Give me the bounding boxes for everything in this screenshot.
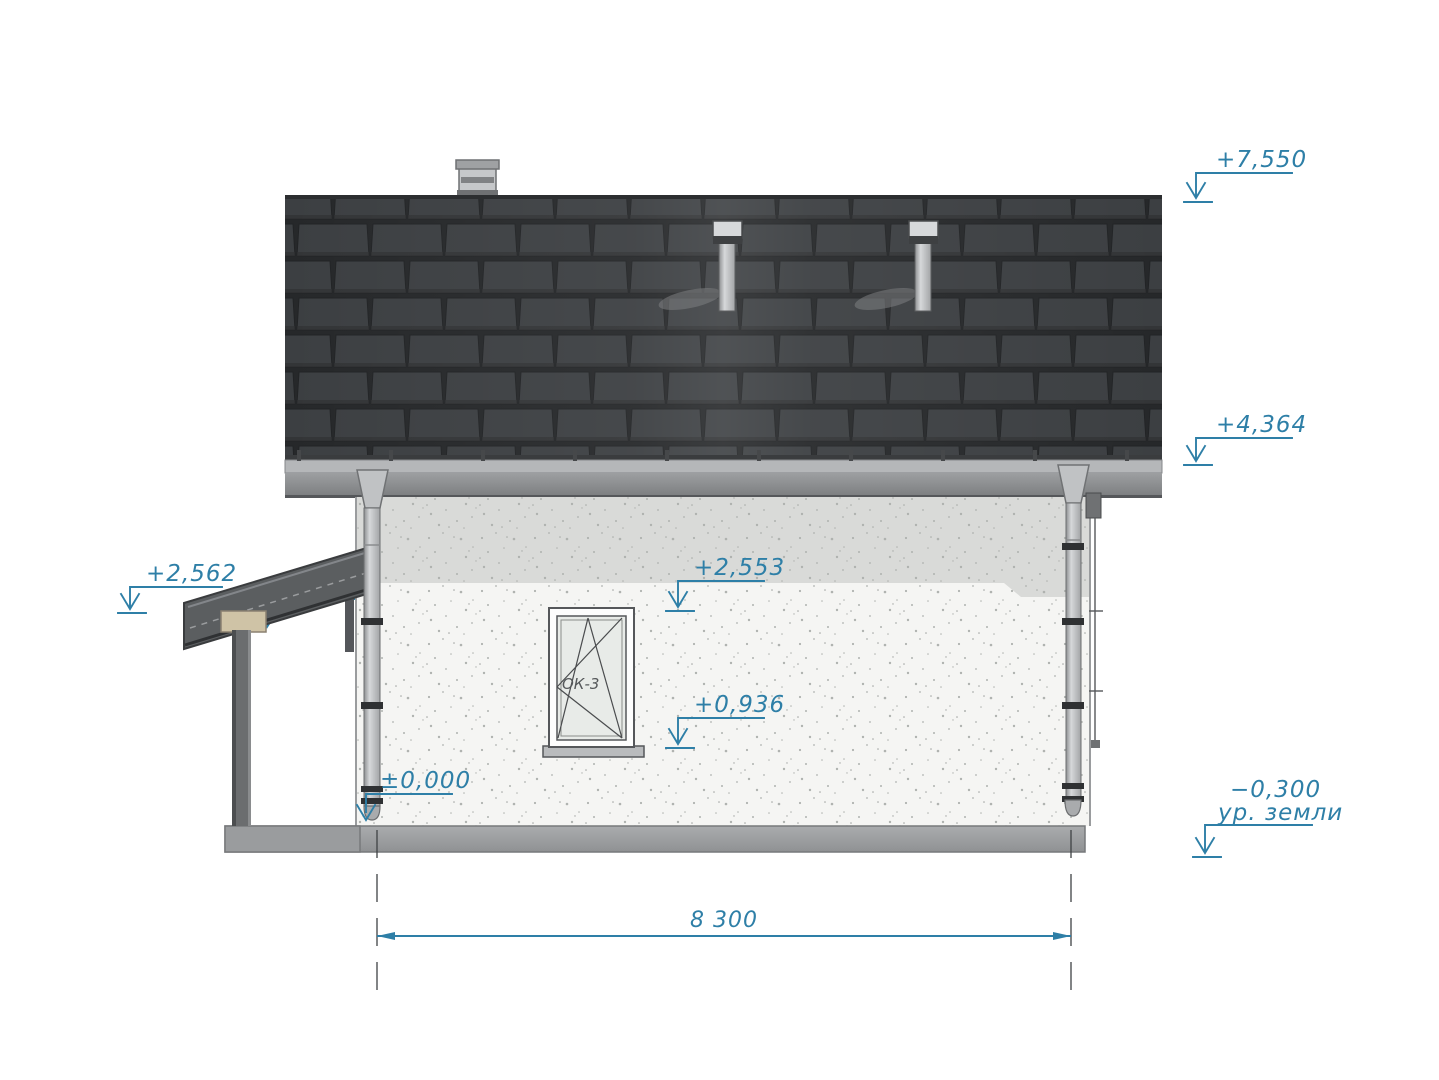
canopy-wall-bracket bbox=[345, 596, 354, 652]
wall-upper-band bbox=[356, 497, 1090, 597]
elevation-marker-ridge: +7,550 bbox=[1184, 147, 1307, 202]
foundation-strip bbox=[225, 826, 1085, 852]
elevation-value: +4,364 bbox=[1216, 412, 1307, 438]
elevation-value: +2,562 bbox=[146, 561, 237, 587]
dim-arrow-right bbox=[1053, 932, 1071, 940]
elevation-drawing: +2,360 bbox=[0, 0, 1439, 1080]
window-ok3: ОК-3 bbox=[543, 608, 644, 757]
ground-level-label: ур. земли bbox=[1217, 800, 1343, 826]
elevation-value: +2,553 bbox=[694, 555, 785, 581]
dim-arrow-left bbox=[377, 932, 395, 940]
elevation-marker-eave: +4,364 bbox=[1184, 412, 1307, 465]
post-cap-block bbox=[221, 611, 266, 632]
roof-ridge-line bbox=[285, 195, 1162, 199]
ridge-vent bbox=[456, 160, 499, 198]
drip-edge bbox=[285, 455, 1162, 460]
elevation-value: ±0,000 bbox=[380, 768, 471, 794]
porch bbox=[184, 547, 370, 826]
elevation-value: +0,936 bbox=[694, 692, 785, 718]
gutter bbox=[285, 460, 1162, 473]
elevation-value: +7,550 bbox=[1216, 147, 1307, 173]
dimension-value: 8 300 bbox=[690, 908, 758, 933]
drawing-canvas: +2,360 bbox=[0, 0, 1439, 1080]
window-label: ОК-3 bbox=[562, 675, 599, 693]
dimension-group: 8 300 bbox=[377, 830, 1071, 990]
downpipe-outlet bbox=[1065, 800, 1081, 816]
eaves bbox=[285, 450, 1162, 498]
fascia-board bbox=[285, 473, 1162, 497]
elevation-marker-ground: −0,300 ур. земли bbox=[1193, 777, 1343, 857]
